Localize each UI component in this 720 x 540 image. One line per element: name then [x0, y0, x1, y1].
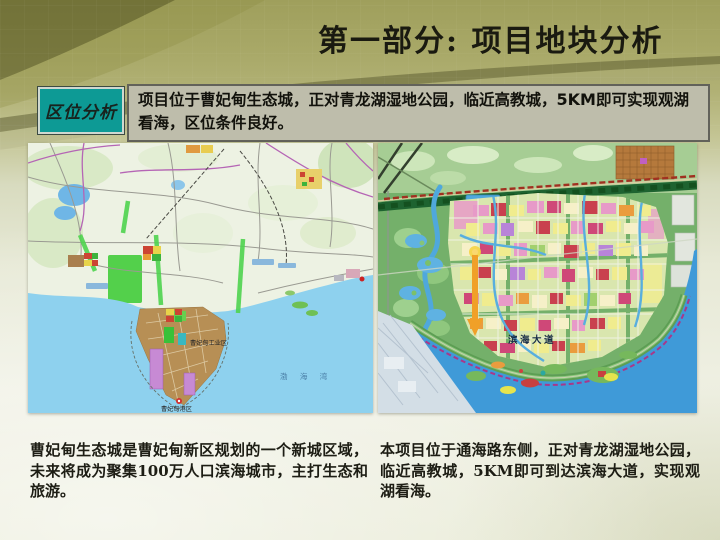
- eco-city-plan-map-svg: 滨海大道: [378, 143, 697, 413]
- caofeidian-region-map: 曹妃甸工业区 曹妃甸港区 渤 海 湾: [28, 143, 373, 413]
- distance-highlight: 5KM: [557, 90, 596, 109]
- location-description-box: 项目位于曹妃甸生态城，正对青龙湖湿地公园，临近高教城，5KM即可实现观湖看海，区…: [127, 84, 710, 142]
- port-zone-label: 曹妃甸港区: [161, 405, 192, 413]
- slide-title: 第一部分: 项目地块分析: [318, 16, 710, 60]
- eco-green-zone: [108, 255, 142, 303]
- purple-plot: [640, 158, 647, 164]
- binhai-avenue-label: 滨海大道: [508, 334, 556, 346]
- caofeidian-region-map-svg: 曹妃甸工业区 曹妃甸港区 渤 海 湾: [28, 143, 373, 413]
- right-map-caption: 本项目位于通海路东侧，正对青龙湖湿地公园，临近高教城，5KM即可到达滨海大道，实…: [380, 440, 700, 502]
- eco-city-plan-map: 滨海大道: [378, 143, 697, 413]
- industrial-zone-label: 曹妃甸工业区: [190, 339, 227, 347]
- bohai-bay-label: 渤 海 湾: [280, 371, 332, 381]
- location-description-text: 项目位于曹妃甸生态城，正对青龙湖湿地公园，临近高教城，: [138, 90, 557, 109]
- left-map-caption: 曹妃甸生态城是曹妃甸新区规划的一个新城区域，未来将成为聚集100万人口滨海城市，…: [30, 440, 368, 502]
- slide: 第一部分: 项目地块分析 区位分析 项目位于曹妃甸生态城，正对青龙湖湿地公园，临…: [0, 0, 720, 540]
- port-marker-center: [178, 400, 180, 402]
- location-analysis-label: 区位分析: [38, 87, 124, 134]
